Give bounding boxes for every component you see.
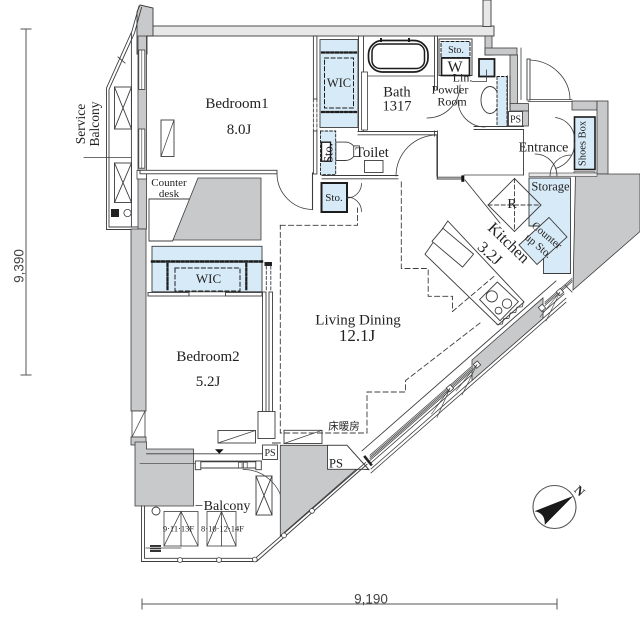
svg-text:WIC: WIC: [196, 271, 221, 286]
svg-text:Toilet: Toilet: [355, 145, 389, 161]
svg-text:Bedroom2: Bedroom2: [176, 349, 239, 365]
svg-text:Storage: Storage: [531, 180, 570, 194]
svg-text:PS: PS: [510, 115, 521, 126]
svg-text:Entrance: Entrance: [519, 141, 569, 156]
svg-text:床暖房: 床暖房: [328, 420, 360, 433]
svg-text:Service: Service: [73, 104, 88, 144]
svg-text:8.0J: 8.0J: [227, 122, 252, 138]
svg-text:5.2J: 5.2J: [196, 374, 221, 390]
svg-text:12.1J: 12.1J: [339, 326, 376, 345]
svg-text:Sto.: Sto.: [322, 143, 336, 163]
svg-text:9·11·13F: 9·11·13F: [163, 524, 195, 534]
svg-text:1317: 1317: [383, 99, 412, 115]
svg-text:PS: PS: [264, 448, 275, 459]
svg-text:Sto.: Sto.: [448, 45, 464, 56]
svg-text:PS: PS: [329, 457, 343, 471]
svg-text:8·10·12·14F: 8·10·12·14F: [201, 524, 244, 534]
svg-text:R: R: [507, 197, 517, 212]
svg-text:9,390: 9,390: [12, 249, 27, 283]
svg-text:9,190: 9,190: [354, 592, 388, 607]
svg-text:Room: Room: [437, 95, 467, 109]
svg-text:desk: desk: [159, 188, 180, 200]
svg-text:WIC: WIC: [327, 76, 351, 90]
svg-text:Sto.: Sto.: [325, 192, 343, 204]
svg-text:Shoes Box: Shoes Box: [578, 120, 589, 166]
svg-text:Bedroom1: Bedroom1: [205, 96, 268, 112]
svg-text:Balcony: Balcony: [87, 101, 102, 146]
